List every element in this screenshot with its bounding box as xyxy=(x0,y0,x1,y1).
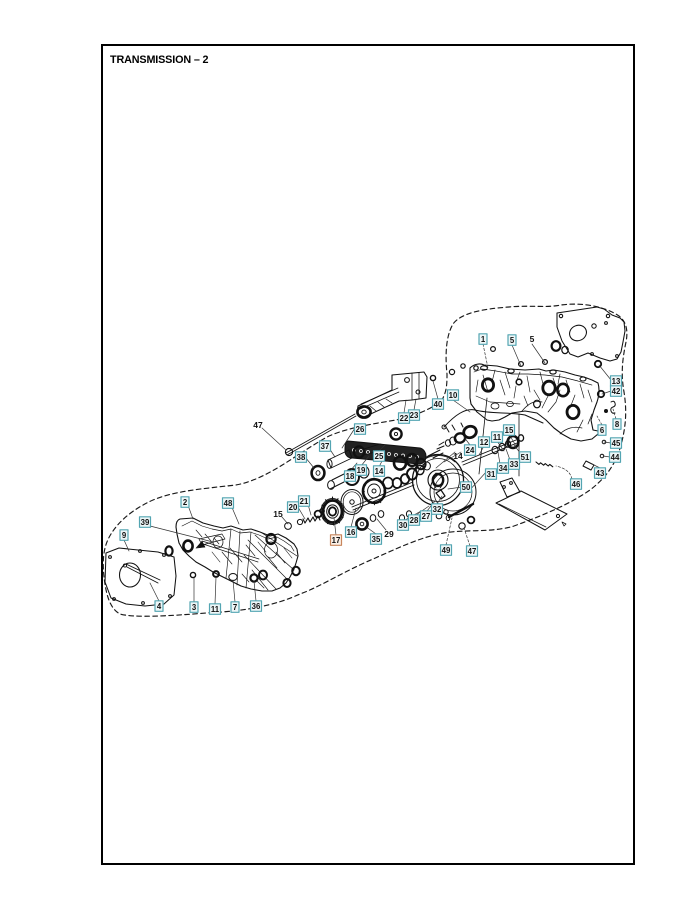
svg-text:40: 40 xyxy=(434,400,443,409)
svg-text:28: 28 xyxy=(410,516,419,525)
svg-text:27: 27 xyxy=(422,512,431,521)
svg-text:29: 29 xyxy=(384,529,394,539)
svg-text:16: 16 xyxy=(347,528,356,537)
svg-text:17: 17 xyxy=(332,536,341,545)
svg-text:51: 51 xyxy=(521,453,530,462)
svg-text:20: 20 xyxy=(289,503,298,512)
svg-text:42: 42 xyxy=(612,387,621,396)
svg-text:26: 26 xyxy=(356,425,365,434)
svg-text:45: 45 xyxy=(612,439,621,448)
svg-text:2: 2 xyxy=(183,498,188,507)
svg-text:31: 31 xyxy=(487,470,496,479)
svg-text:11: 11 xyxy=(211,605,220,614)
svg-text:47: 47 xyxy=(253,420,263,430)
svg-text:22: 22 xyxy=(400,414,409,423)
svg-text:36: 36 xyxy=(252,602,261,611)
svg-text:46: 46 xyxy=(572,480,581,489)
svg-text:4: 4 xyxy=(157,602,162,611)
svg-text:15: 15 xyxy=(505,426,514,435)
svg-text:48: 48 xyxy=(224,499,233,508)
svg-text:9: 9 xyxy=(122,531,127,540)
svg-text:21: 21 xyxy=(300,497,309,506)
svg-text:3: 3 xyxy=(192,603,197,612)
svg-text:30: 30 xyxy=(399,521,408,530)
svg-text:33: 33 xyxy=(510,460,519,469)
svg-text:19: 19 xyxy=(357,466,366,475)
svg-text:34: 34 xyxy=(499,464,508,473)
svg-text:24: 24 xyxy=(466,446,475,455)
svg-text:10: 10 xyxy=(449,391,458,400)
svg-text:12: 12 xyxy=(480,438,489,447)
svg-text:7: 7 xyxy=(233,603,237,612)
svg-text:5: 5 xyxy=(530,334,535,344)
svg-text:11: 11 xyxy=(493,433,502,442)
svg-text:25: 25 xyxy=(375,452,384,461)
svg-text:23: 23 xyxy=(410,411,419,420)
svg-text:18: 18 xyxy=(346,472,355,481)
svg-text:1: 1 xyxy=(481,335,486,344)
svg-text:32: 32 xyxy=(433,505,442,514)
svg-text:35: 35 xyxy=(372,535,381,544)
svg-text:8: 8 xyxy=(615,420,620,429)
svg-text:38: 38 xyxy=(297,453,306,462)
svg-text:37: 37 xyxy=(321,442,330,451)
svg-text:6: 6 xyxy=(600,426,605,435)
svg-text:14: 14 xyxy=(453,451,463,461)
svg-text:44: 44 xyxy=(611,453,620,462)
svg-text:5: 5 xyxy=(510,336,515,345)
svg-text:14: 14 xyxy=(375,467,384,476)
svg-text:47: 47 xyxy=(468,547,477,556)
svg-text:49: 49 xyxy=(442,546,451,555)
svg-text:39: 39 xyxy=(141,518,150,527)
svg-text:15: 15 xyxy=(273,509,283,519)
svg-text:43: 43 xyxy=(596,469,605,478)
svg-text:13: 13 xyxy=(612,377,621,386)
svg-text:50: 50 xyxy=(462,483,471,492)
